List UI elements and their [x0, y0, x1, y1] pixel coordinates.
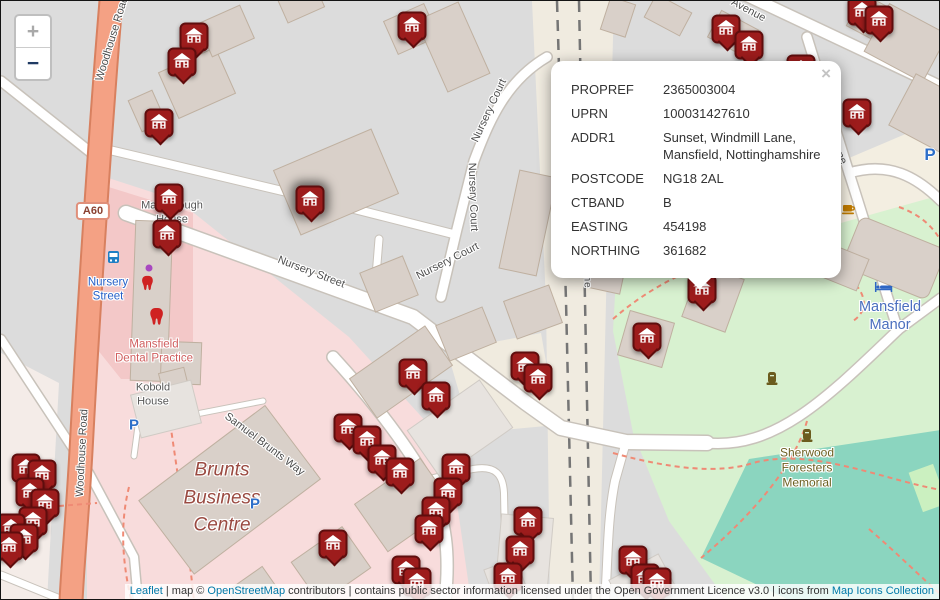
- property-marker[interactable]: [296, 186, 325, 215]
- area-label-memorial: Sherwood Foresters Memorial: [764, 446, 850, 491]
- house-icon: [870, 10, 889, 29]
- property-marker[interactable]: [633, 323, 662, 352]
- popup-row: CTBAND B: [571, 194, 821, 211]
- house-icon: [447, 458, 466, 477]
- property-marker[interactable]: [319, 530, 348, 559]
- house-icon: [499, 567, 518, 586]
- field-value: 2365003004: [663, 81, 821, 98]
- property-marker[interactable]: [168, 48, 197, 77]
- house-icon: [185, 27, 204, 46]
- attribution-text: contributors | contains public sector in…: [285, 585, 832, 597]
- property-marker[interactable]: [415, 515, 444, 544]
- field-value: Sunset, Windmill Lane, Mansfield, Nottin…: [663, 129, 821, 163]
- field-value: NG18 2AL: [663, 170, 821, 187]
- house-icon: [404, 363, 423, 382]
- area-label-dental: Mansfield Dental Practice: [115, 338, 193, 367]
- property-marker[interactable]: [386, 458, 415, 487]
- property-marker[interactable]: [514, 507, 543, 536]
- property-marker[interactable]: [398, 12, 427, 41]
- field-label: NORTHING: [571, 242, 663, 259]
- property-marker[interactable]: [145, 109, 174, 138]
- property-marker[interactable]: [155, 184, 184, 213]
- attribution-bar: Leaflet | map © OpenStreetMap contributo…: [125, 584, 939, 599]
- field-label: UPRN: [571, 105, 663, 122]
- leaflet-link[interactable]: Leaflet: [130, 585, 163, 597]
- parking-icon: P: [924, 145, 935, 165]
- poi-dot: [146, 265, 153, 272]
- house-icon: [391, 462, 410, 481]
- house-icon: [0, 536, 19, 555]
- house-icon: [529, 368, 548, 387]
- road-label-nursery-court-2: Nursery Court: [464, 163, 480, 232]
- property-marker[interactable]: [735, 31, 764, 60]
- zoom-control: + −: [14, 14, 52, 81]
- popup-row: NORTHING 361682: [571, 242, 821, 259]
- field-label: EASTING: [571, 218, 663, 235]
- field-label: PROPREF: [571, 81, 663, 98]
- house-icon: [740, 35, 759, 54]
- property-marker[interactable]: [153, 220, 182, 249]
- field-label: CTBAND: [571, 194, 663, 211]
- transit-stop-label: Nursery Street: [80, 276, 136, 305]
- route-badge-a60: A60: [76, 202, 110, 220]
- house-icon: [848, 103, 867, 122]
- bus-stop-icon: [108, 251, 119, 263]
- popup-row: PROPREF 2365003004: [571, 81, 821, 98]
- house-icon: [511, 540, 530, 559]
- popup-row: ADDR1 Sunset, Windmill Lane, Mansfield, …: [571, 129, 821, 163]
- map-canvas[interactable]: Woodhouse Road Woodhouse Road A60 Marlbo…: [0, 0, 940, 600]
- field-value: 454198: [663, 218, 821, 235]
- attribution-text: | map ©: [163, 585, 208, 597]
- map-icons-collection-link[interactable]: Map Icons Collection: [832, 585, 934, 597]
- house-icon: [160, 188, 179, 207]
- parking-icon: P: [250, 496, 260, 513]
- close-icon[interactable]: ×: [821, 66, 831, 82]
- house-icon: [158, 224, 177, 243]
- house-icon: [150, 113, 169, 132]
- popup-row: EASTING 454198: [571, 218, 821, 235]
- field-label: ADDR1: [571, 129, 663, 163]
- memorial-icon: [767, 372, 778, 385]
- property-marker[interactable]: [422, 382, 451, 411]
- popup-row: POSTCODE NG18 2AL: [571, 170, 821, 187]
- house-icon: [403, 16, 422, 35]
- field-value: 361682: [663, 242, 821, 259]
- property-marker[interactable]: [524, 364, 553, 393]
- openstreetmap-link[interactable]: OpenStreetMap: [207, 585, 285, 597]
- property-marker[interactable]: [0, 532, 24, 561]
- property-marker[interactable]: [843, 99, 872, 128]
- parking-icon: P: [129, 417, 139, 434]
- zoom-out-button[interactable]: −: [16, 48, 50, 79]
- house-icon: [301, 190, 320, 209]
- house-icon: [173, 52, 192, 71]
- area-label-manor: Mansfield Manor: [845, 298, 935, 334]
- house-icon: [519, 511, 538, 530]
- cafe-icon: [842, 205, 855, 214]
- memorial-icon: [802, 429, 813, 442]
- field-value: 100031427610: [663, 105, 821, 122]
- area-label-kobold: Kobold House: [123, 381, 183, 409]
- house-icon: [717, 19, 736, 38]
- field-label: POSTCODE: [571, 170, 663, 187]
- house-icon: [324, 534, 343, 553]
- house-icon: [427, 386, 446, 405]
- field-value: B: [663, 194, 821, 211]
- house-icon: [420, 519, 439, 538]
- popup-row: UPRN 100031427610: [571, 105, 821, 122]
- area-label-brunts: Brunts Business Centre: [157, 457, 287, 540]
- property-popup: × PROPREF 2365003004 UPRN 100031427610 A…: [551, 61, 841, 278]
- property-marker[interactable]: [865, 6, 894, 35]
- house-icon: [638, 327, 657, 346]
- property-marker[interactable]: [506, 536, 535, 565]
- zoom-in-button[interactable]: +: [16, 16, 50, 48]
